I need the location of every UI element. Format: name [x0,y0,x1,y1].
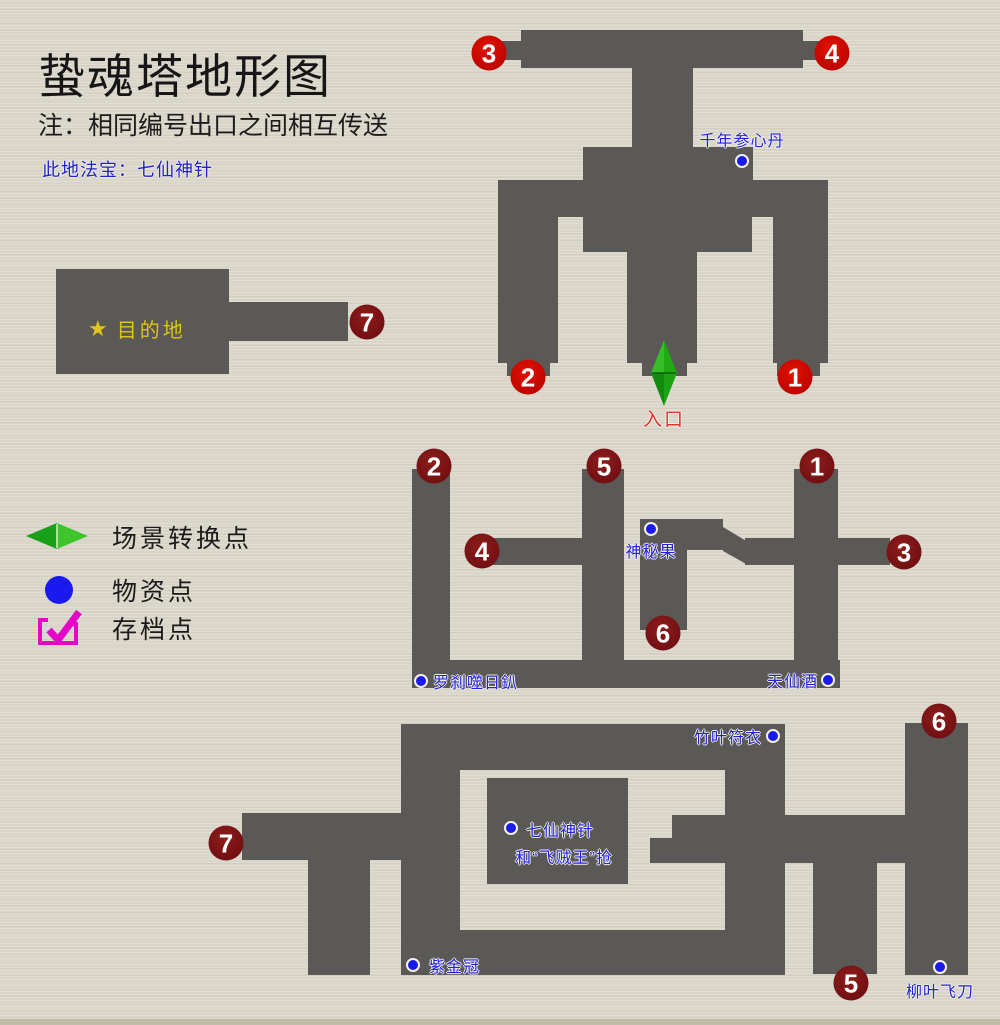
destination-marker: ★ 目的地 [88,314,186,343]
item-label-tianxianjiu: 天仙酒 [767,668,818,692]
portal-badge-7-bottom: 7 [209,826,244,861]
supply-point-icon [45,576,73,604]
destination-label: 目的地 [117,314,186,343]
map-canvas: 蛰魂塔地形图 注：相同编号出口之间相互传送 此地法宝：七仙神针 场景转换点 物资… [0,0,1000,1025]
treasure-note: 此地法宝：七仙神针 [42,156,213,182]
supply-dot-shenmiguo [644,522,658,536]
portal-badge-3-middle: 3 [887,535,922,570]
portal-badge-3-top: 3 [472,36,507,71]
portal-badge-2-middle: 2 [417,449,452,484]
supply-dot-luosha [414,674,428,688]
item-label-zhuye: 竹叶符衣 [694,724,762,748]
supply-dot-qixian [504,821,518,835]
legend-label-scene-transition: 场景转换点 [112,519,252,555]
portal-badge-6-bottom: 6 [922,704,957,739]
supply-dot-tianxianjiu [821,673,835,687]
item-label-zijinguan: 紫金冠 [429,953,480,977]
portal-badge-4-top: 4 [815,36,850,71]
supply-dot-liuye [933,960,947,974]
legend-label-save-point: 存档点 [112,610,196,646]
corridor-shapes [0,0,1000,1025]
star-icon: ★ [88,318,108,340]
portal-badge-1-middle: 1 [800,449,835,484]
portal-badge-7-destination: 7 [350,305,385,340]
supply-dot-qiannian [735,154,749,168]
supply-dot-zhuye [766,729,780,743]
entrance-label: 入口 [643,405,685,432]
item-label-liuye: 柳叶飞刀 [906,978,974,1002]
item-note-feizeiwang: 和“飞贼王”抢 [515,844,613,868]
portal-badge-2-top: 2 [511,360,546,395]
save-point-icon [36,609,84,646]
portal-badge-4-middle: 4 [465,534,500,569]
page-title: 蛰魂塔地形图 [38,38,332,107]
item-label-shenmiguo: 神秘果 [625,538,676,562]
item-label-qiannian: 千年参心丹 [699,127,784,151]
scene-transition-icon [26,523,88,549]
legend-label-supply-point: 物资点 [112,572,196,608]
item-label-luosha: 罗刹噬日釟 [433,669,518,693]
supply-dot-zijinguan [406,958,420,972]
map-note: 注：相同编号出口之间相互传送 [38,106,388,142]
entrance-scene-transition-icon [651,340,677,406]
portal-badge-6-middle: 6 [646,616,681,651]
portal-badge-5-middle: 5 [587,449,622,484]
item-label-qixian: 七仙神针 [526,817,594,841]
portal-badge-1-top: 1 [778,360,813,395]
portal-badge-5-bottom: 5 [834,966,869,1001]
